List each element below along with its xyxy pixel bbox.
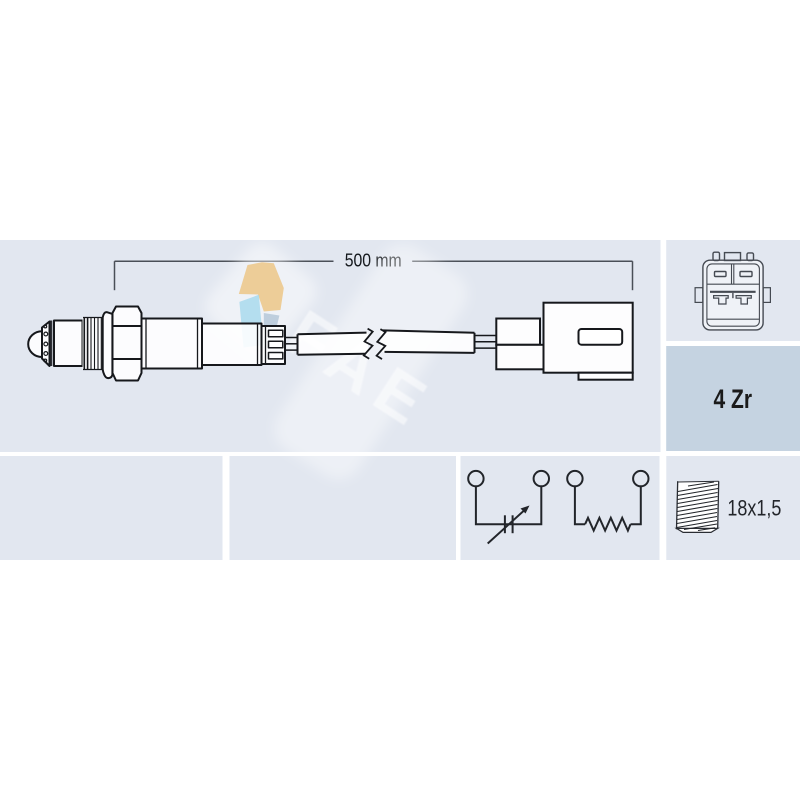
svg-text:18x1,5: 18x1,5: [727, 496, 781, 521]
svg-text:4 Zr: 4 Zr: [714, 384, 753, 414]
